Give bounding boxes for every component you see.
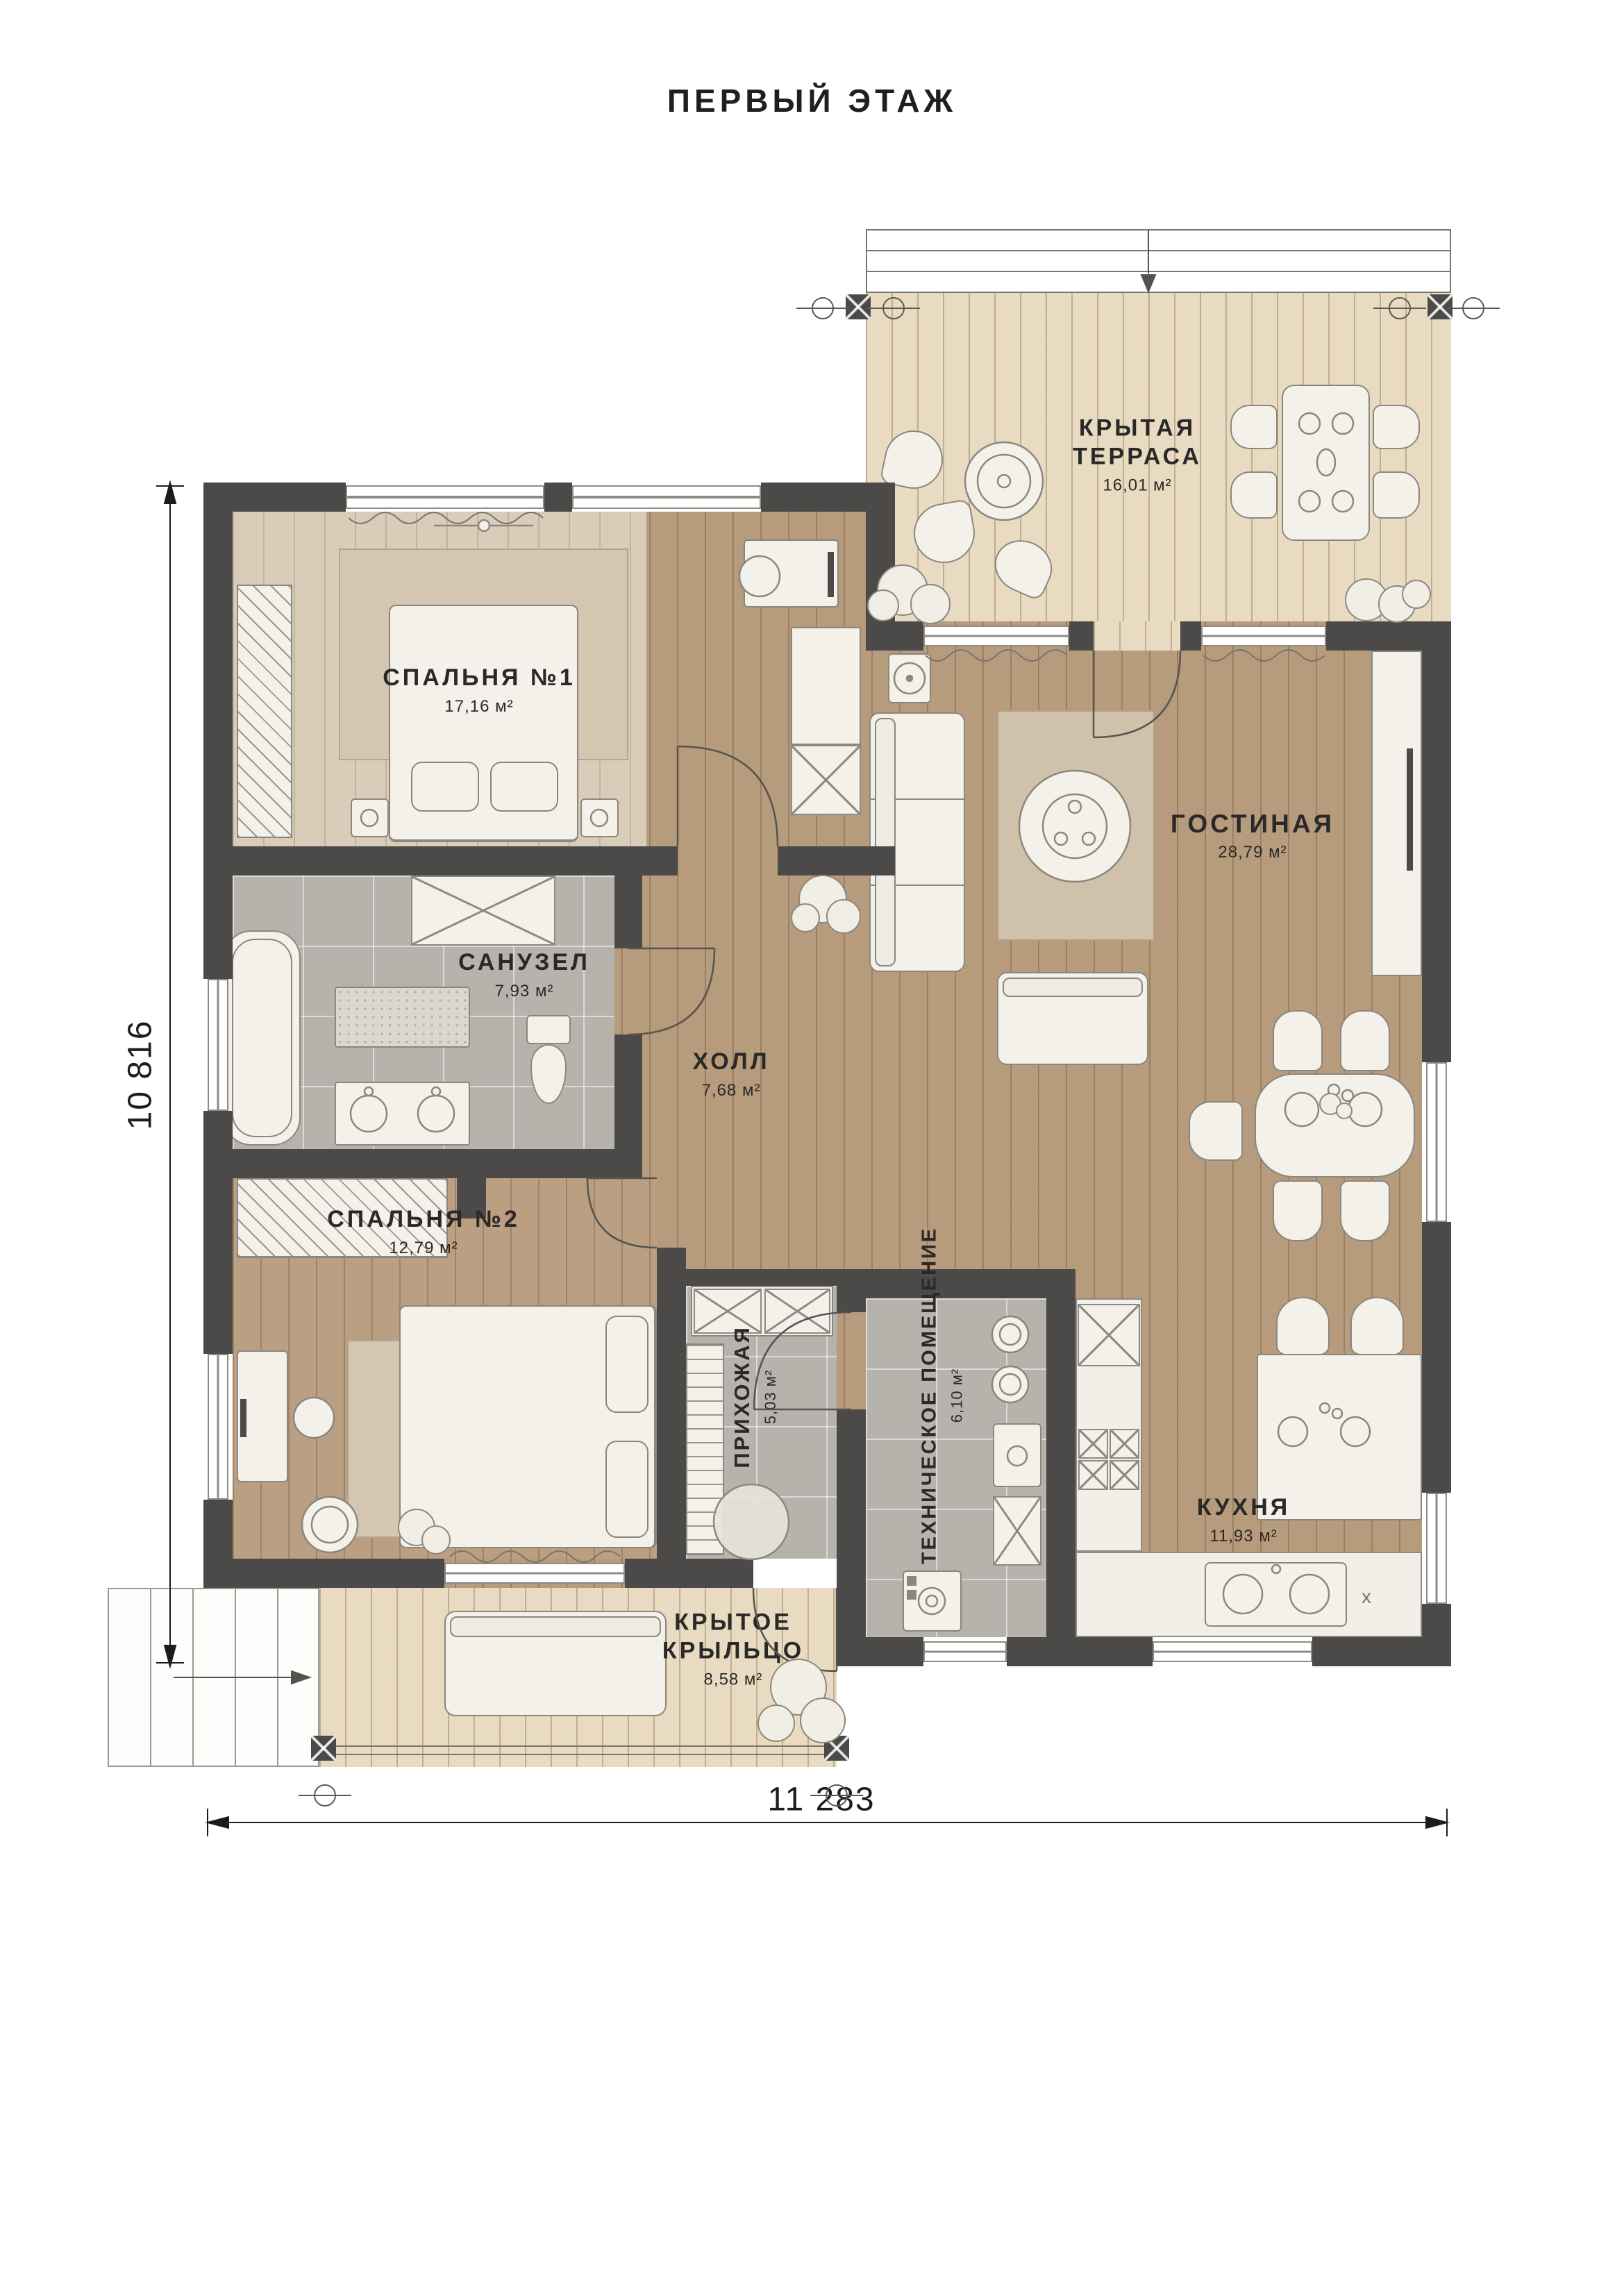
window-living-terrace-2 (1201, 626, 1326, 646)
room-label-hall: ХОЛЛ 7,68 м² (692, 1048, 769, 1100)
wall (203, 483, 233, 979)
terrace-dining-table (1282, 385, 1370, 541)
living-rug (997, 710, 1155, 941)
room-label-technical: ТЕХНИЧЕСКОЕ ПОМЕЩЕНИЕ 6,10 м² (919, 1227, 966, 1564)
window-bedroom1 (346, 485, 544, 509)
wall (614, 846, 642, 948)
stove-burner (1078, 1460, 1108, 1490)
wall (1422, 621, 1451, 1062)
porch-railing (319, 1745, 837, 1755)
page-title: ПЕРВЫЙ ЭТАЖ (0, 82, 1624, 119)
window-kitchen-right (1426, 1493, 1447, 1604)
room-label-bedroom2: СПАЛЬНЯ №2 12,79 м² (327, 1205, 520, 1258)
porch-stairs (108, 1588, 319, 1767)
room-area: 8,58 м² (662, 1670, 804, 1690)
wall (203, 1559, 444, 1588)
room-label-bathroom: САНУЗЕЛ 7,93 м² (458, 948, 590, 1001)
bar-stool (1350, 1297, 1404, 1355)
bathtub-inner (232, 939, 292, 1137)
nightstand (580, 798, 619, 837)
bench-backrest (450, 1616, 661, 1637)
bathroom-cabinet (411, 875, 555, 946)
room-name: ТЕРРАСА (1073, 443, 1202, 471)
wall (866, 1269, 1075, 1298)
wall (837, 1409, 866, 1666)
window-living (1426, 1062, 1447, 1222)
room-area: 6,10 м² (948, 1227, 966, 1564)
wall (1422, 1222, 1451, 1493)
kitchen-sink (1205, 1562, 1347, 1627)
desk-monitor (240, 1399, 246, 1437)
room-area: 12,79 м² (327, 1239, 520, 1258)
room-name: КУХНЯ (1197, 1493, 1290, 1522)
room-label-porch: КРЫТОЕ КРЫЛЬЦО 8,58 м² (662, 1609, 804, 1690)
wall (203, 1111, 233, 1354)
wall (1069, 621, 1094, 651)
stove-burner (1110, 1429, 1139, 1459)
dimension-width: 11 283 (767, 1781, 875, 1819)
window-kitchen-bottom (1153, 1641, 1312, 1662)
wall (778, 846, 895, 875)
room-label-living: ГОСТИНАЯ 28,79 м² (1171, 810, 1334, 862)
door-technical-exterior (923, 1641, 1007, 1662)
room-name: КРЫТАЯ (1073, 414, 1202, 443)
bedroom1-wardrobe (237, 585, 292, 838)
wall (761, 483, 895, 512)
wall (544, 483, 572, 512)
sofa-small (997, 972, 1148, 1065)
terrace-railing (866, 229, 1451, 293)
bed-pillow (605, 1316, 648, 1413)
terrace-dining-chair (1230, 471, 1278, 519)
porch-bench (444, 1611, 667, 1716)
dining-chair (1340, 1180, 1390, 1241)
dining-chair (1340, 1010, 1390, 1071)
dining-chair (1273, 1010, 1323, 1071)
side-table (888, 653, 931, 703)
dimension-height: 10 816 (122, 1020, 160, 1130)
wall (233, 846, 678, 875)
room-name: СПАЛЬНЯ №2 (327, 1205, 520, 1234)
bedroom1-shelf (791, 627, 861, 745)
sink-vanity (335, 1082, 470, 1146)
toilet-tank (526, 1015, 571, 1044)
terrace-dining-chair (1230, 405, 1278, 449)
room-area: 16,01 м² (1073, 476, 1202, 496)
wall (866, 621, 923, 651)
window-hall-top (572, 485, 761, 509)
room-name: ПРИХОЖАЯ (730, 1325, 755, 1468)
floor-plan-sheet: ПЕРВЫЙ ЭТАЖ (0, 0, 1624, 2296)
wall (625, 1559, 753, 1588)
bed-pillow (605, 1441, 648, 1538)
bed-pillow (411, 762, 479, 812)
sofa-backrest (1003, 978, 1143, 997)
room-area: 7,68 м² (692, 1081, 769, 1100)
room-area: 11,93 м² (1197, 1527, 1290, 1546)
porch-column-right (824, 1736, 849, 1761)
cooktop-mark: x (1362, 1586, 1371, 1608)
wall (866, 1637, 923, 1666)
door-entry-threshold (753, 1559, 837, 1588)
wall (614, 1034, 642, 1149)
room-area: 7,93 м² (458, 982, 590, 1001)
terrace-door-threshold (1094, 621, 1180, 651)
room-name: САНУЗЕЛ (458, 948, 590, 977)
kitchen-cabinet (1078, 1304, 1140, 1366)
window-bathroom (208, 979, 228, 1111)
room-area: 17,16 м² (383, 697, 576, 717)
window-living-terrace-1 (923, 626, 1069, 646)
tech-cabinet (993, 1423, 1041, 1487)
wall (1007, 1637, 1153, 1666)
room-label-kitchen: КУХНЯ 11,93 м² (1197, 1493, 1290, 1546)
dining-table (1255, 1073, 1415, 1178)
wall (203, 1149, 642, 1178)
bed-pillow (490, 762, 558, 812)
window-bedroom2-left (208, 1354, 228, 1500)
bedroom1-cabinet (791, 745, 861, 815)
tv-screen (1407, 748, 1413, 871)
room-name: ХОЛЛ (692, 1048, 769, 1076)
heater-switch (907, 1576, 916, 1586)
sofa-backrest (875, 718, 896, 966)
room-label-terrace: КРЫТАЯ ТЕРРАСА 16,01 м² (1073, 414, 1202, 496)
wall (1046, 1298, 1075, 1637)
room-name: ТЕХНИЧЕСКОЕ ПОМЕЩЕНИЕ (919, 1227, 941, 1564)
bar-stool (1276, 1297, 1330, 1355)
room-name: КРЫЛЬЦО (662, 1637, 804, 1666)
desk-monitor (828, 552, 834, 597)
tv-console (1371, 651, 1422, 976)
dining-chair (1189, 1101, 1243, 1161)
wall (1312, 1637, 1451, 1666)
wall (686, 1269, 837, 1286)
tech-cabinet-crossed (993, 1496, 1041, 1566)
entry-shoe-bench (686, 1343, 724, 1555)
bedroom1-desk (744, 539, 839, 607)
stove-burner (1110, 1460, 1139, 1490)
room-name: КРЫТОЕ (662, 1609, 804, 1637)
terrace-column-right (1428, 294, 1453, 319)
room-label-entry-hall: ПРИХОЖАЯ 5,03 м² (730, 1325, 780, 1468)
heater-switch (907, 1590, 916, 1600)
porch-column-left (311, 1736, 336, 1761)
window-bedroom2-porch (444, 1563, 625, 1584)
nightstand (351, 798, 389, 837)
sofa-large (869, 712, 965, 972)
terrace-column-left (846, 294, 871, 319)
wall (837, 1269, 866, 1312)
room-name: СПАЛЬНЯ №1 (383, 664, 576, 692)
room-label-bedroom1: СПАЛЬНЯ №1 17,16 м² (383, 664, 576, 717)
stove-burner (1078, 1429, 1108, 1459)
wall (657, 1248, 686, 1588)
room-area: 28,79 м² (1171, 843, 1334, 862)
room-name: ГОСТИНАЯ (1171, 810, 1334, 838)
terrace-dining-chair (1373, 405, 1420, 449)
bath-mat (335, 987, 470, 1048)
terrace-dining-chair (1373, 471, 1420, 519)
wall (1180, 621, 1201, 651)
room-area: 5,03 м² (762, 1325, 780, 1468)
dining-chair (1273, 1180, 1323, 1241)
